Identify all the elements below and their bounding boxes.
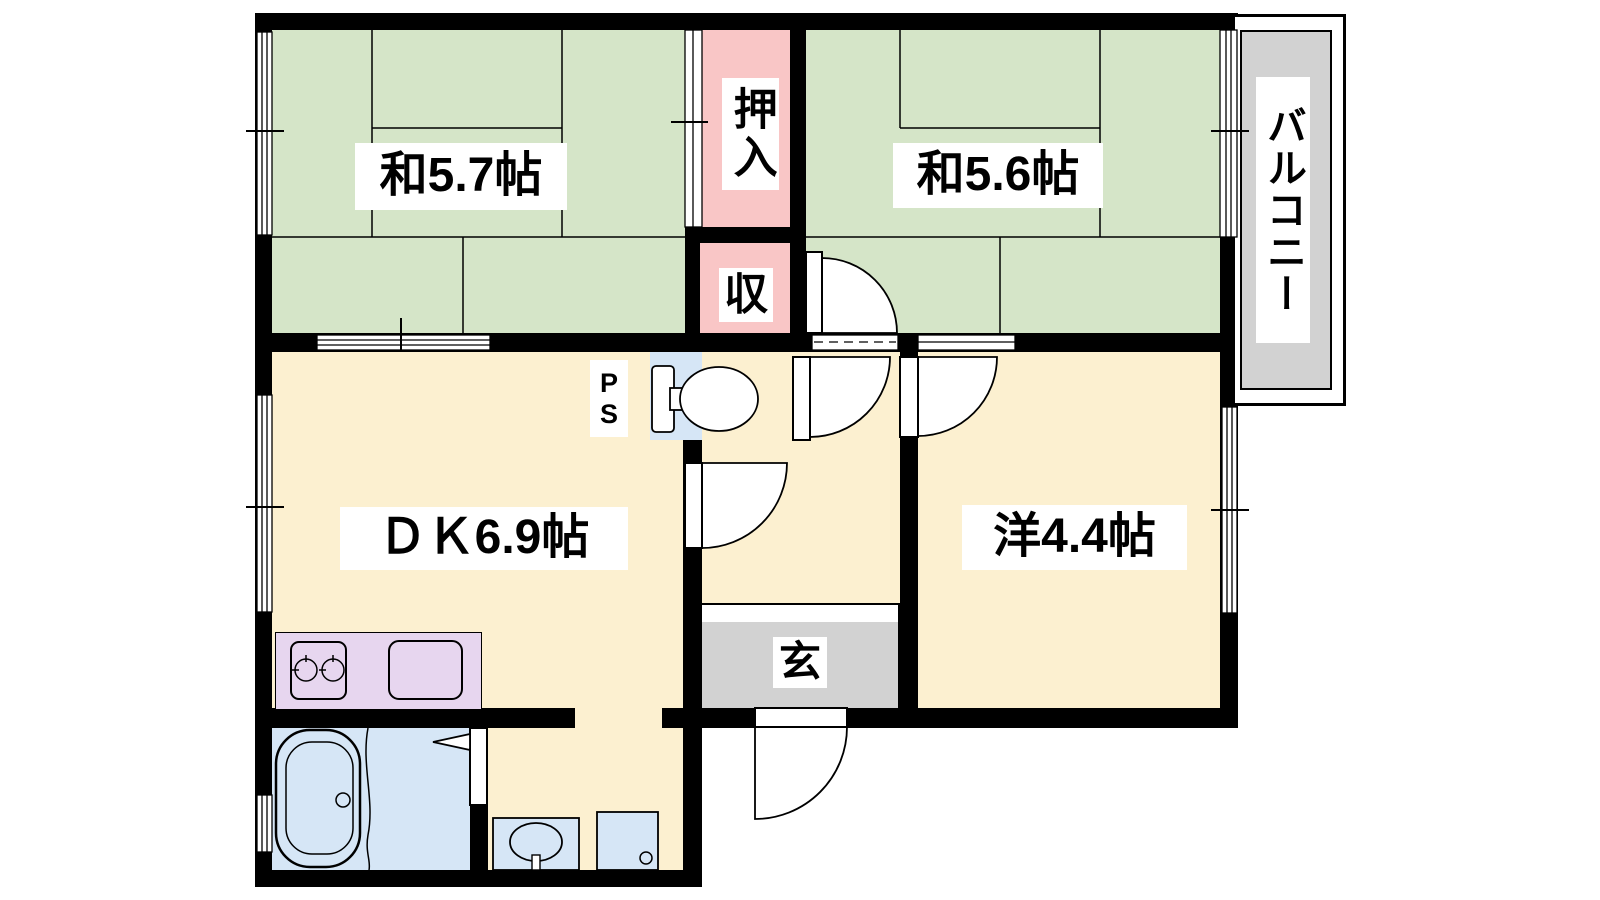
label-western: 洋4.4帖 <box>962 505 1187 570</box>
wall-oshiire-right <box>790 13 806 352</box>
wall-outer-top <box>255 13 1238 30</box>
label-balcony: バルコニー <box>1256 77 1310 343</box>
ps-label-line1: P <box>600 368 618 399</box>
hallway <box>702 352 900 603</box>
wall-shu-left <box>685 243 700 352</box>
label-dk: ＤＫ6.9帖 <box>340 507 628 570</box>
wall-outer-left <box>255 13 272 887</box>
floor-plan: 和5.7帖 和5.6帖 ＤＫ6.9帖 洋4.4帖 押入 収 玄 バルコニー P … <box>0 0 1600 900</box>
wall-band-lower <box>255 708 1238 728</box>
label-oshiire: 押入 <box>722 78 779 190</box>
bath-room <box>272 728 470 870</box>
ps-box: P S <box>590 360 628 437</box>
ps-label-line2: S <box>600 399 618 430</box>
wall-bath-divider <box>470 805 488 870</box>
label-washitsu-5-6: 和5.6帖 <box>893 143 1103 208</box>
wall-outer-bottom <box>255 870 702 887</box>
wall-band-middle <box>255 333 1238 352</box>
washroom-corridor <box>488 728 683 870</box>
wall-hall-left <box>683 440 702 887</box>
label-washitsu-5-7: 和5.7帖 <box>355 143 567 210</box>
wall-hall-right <box>898 352 918 728</box>
wall-oshiire-shu <box>685 227 806 243</box>
wall-right-lower <box>1220 352 1238 728</box>
kitchen-counter <box>275 632 482 710</box>
dk-washroom-opening <box>575 708 662 728</box>
label-shu: 収 <box>719 268 773 322</box>
label-entrance: 玄 <box>773 637 827 688</box>
